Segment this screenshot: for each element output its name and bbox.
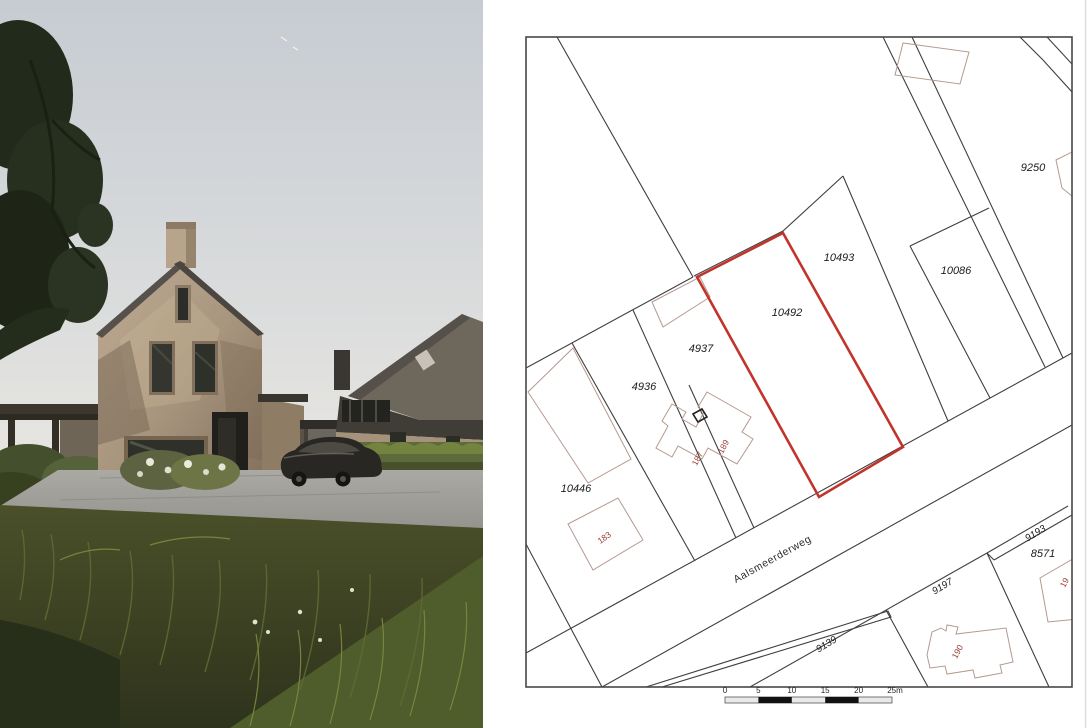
parcel-label-9250: 9250 <box>1021 162 1046 174</box>
parcel-boundaries <box>526 37 1072 687</box>
highlighted-parcel-10492 <box>697 233 903 497</box>
parcel-label-10492: 10492 <box>772 307 803 319</box>
house-number-19x: 19 <box>1058 576 1071 589</box>
house-number-183: 183 <box>596 529 614 545</box>
parcel-label-10086: 10086 <box>941 265 972 277</box>
street-label-aalsmeerderweg: Aalsmeerderweg <box>732 533 814 586</box>
scale-bar: 0 5 10 15 20 25m <box>723 686 903 703</box>
scale-tick-25m: 25m <box>887 686 903 695</box>
parcel-label-9139: 9139 <box>814 634 839 655</box>
footprint-187-189 <box>656 392 753 464</box>
parcel-label-10446: 10446 <box>561 483 592 495</box>
house-number-190: 190 <box>950 643 966 660</box>
scale-tick-10: 10 <box>787 686 796 695</box>
parcel-label-4937: 4937 <box>689 343 714 355</box>
scale-tick-5: 5 <box>756 686 761 695</box>
building-footprints <box>528 43 1088 678</box>
scale-tick-20: 20 <box>854 686 863 695</box>
house-number-189: 189 <box>716 438 732 455</box>
footprint-190 <box>927 625 1013 678</box>
footprint-19x <box>1040 556 1088 622</box>
parcel-label-4936: 4936 <box>632 381 657 393</box>
parcel-label-8571: 8571 <box>1031 548 1055 560</box>
scale-tick-15: 15 <box>821 686 830 695</box>
parcel-label-9197: 9197 <box>930 576 955 597</box>
listing-media-panel: 9250 10493 10086 10492 4937 4936 10446 8… <box>0 0 1092 728</box>
cadastral-map: 9250 10493 10086 10492 4937 4936 10446 8… <box>0 0 1092 728</box>
scale-tick-0: 0 <box>723 686 728 695</box>
map-frame <box>526 37 1072 687</box>
parcel-label-9193: 9193 <box>1023 523 1048 544</box>
parcel-label-10493: 10493 <box>824 252 855 264</box>
